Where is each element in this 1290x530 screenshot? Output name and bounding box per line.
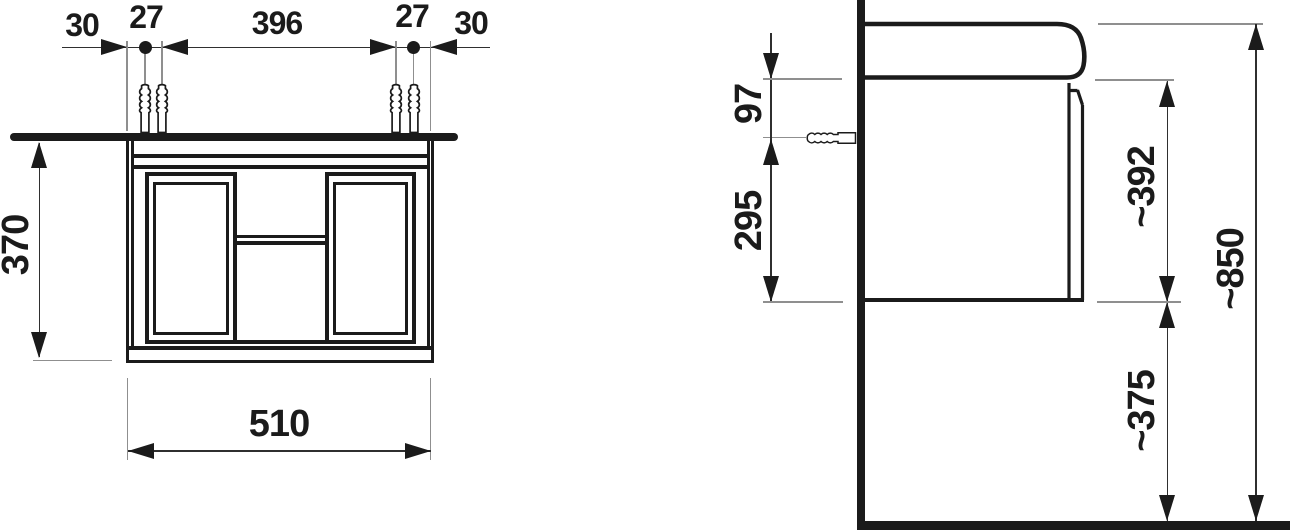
floor	[857, 521, 1290, 530]
cabinet-door-front-profile	[1059, 83, 1087, 303]
reference-line-basin-bottom-right	[1095, 79, 1174, 81]
reference-line-cabinet-bottom-right	[1097, 301, 1181, 303]
dim-label-floor-clearance: ~375	[1123, 370, 1161, 452]
technical-drawing: 30 27 396 27 30	[0, 0, 1290, 530]
arrowhead-up-icon	[1159, 81, 1175, 107]
dim-label-cabinet-with-basin-height: ~392	[1123, 146, 1161, 228]
arrowhead-down-icon	[1248, 495, 1264, 521]
dim-label-total-height: ~850	[1212, 228, 1250, 310]
wall-anchor-icon	[806, 131, 857, 145]
arrowhead-up-icon	[1248, 24, 1264, 50]
arrowhead-up-icon	[1159, 302, 1175, 328]
arrowhead-down-icon	[763, 53, 779, 79]
reference-line-basin-top	[1098, 23, 1263, 25]
wall	[857, 0, 865, 530]
dim-label-anchor-to-bottom: 295	[730, 191, 768, 251]
arrowhead-down-icon	[1159, 495, 1175, 521]
side-view: 97 295 ~392 ~375 ~850	[0, 0, 1290, 530]
cabinet-side-bottom-line	[861, 298, 1084, 302]
arrowhead-down-icon	[1159, 276, 1175, 302]
washbasin-side-profile	[865, 19, 1091, 84]
arrowhead-down-icon	[763, 276, 779, 302]
arrowhead-up-icon	[763, 139, 779, 165]
dim-label-basin-to-anchor: 97	[730, 84, 768, 124]
total-height-dimension-line	[1255, 24, 1257, 521]
reference-line-cabinet-bottom-side	[763, 301, 843, 303]
reference-line-basin-bottom	[763, 78, 842, 80]
